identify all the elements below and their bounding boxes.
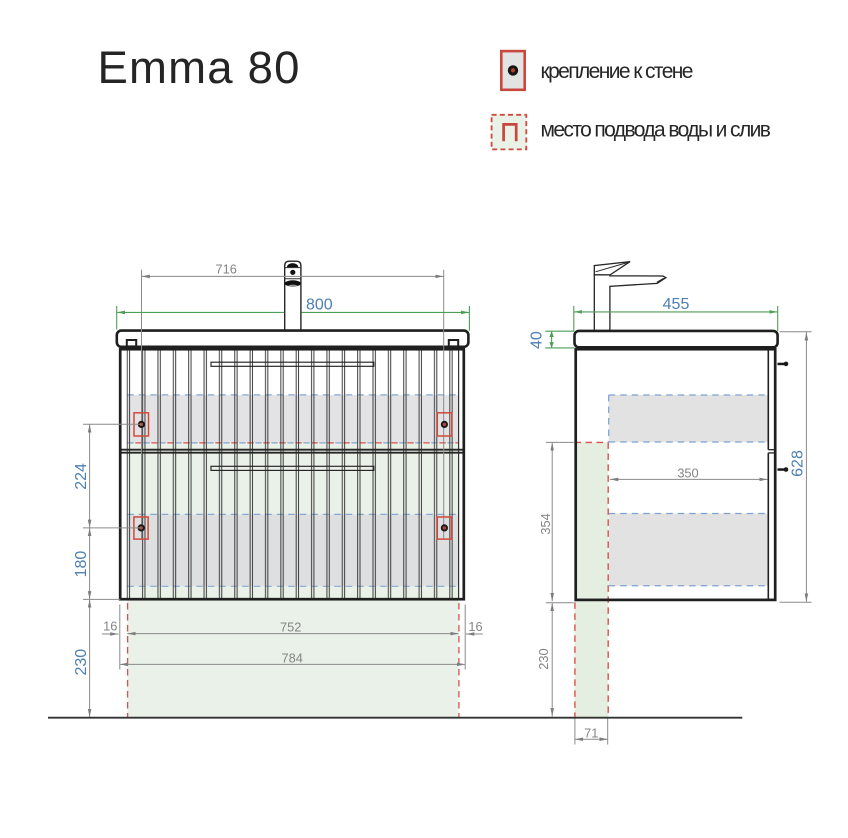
svg-text:место подвода воды и слив: место подвода воды и слив	[541, 118, 771, 141]
svg-text:784: 784	[282, 650, 303, 665]
svg-text:16: 16	[103, 619, 117, 634]
svg-text:224: 224	[73, 463, 90, 490]
svg-text:628: 628	[789, 450, 806, 477]
svg-text:354: 354	[538, 513, 553, 534]
svg-text:71: 71	[584, 725, 598, 740]
svg-text:Emma 80: Emma 80	[98, 42, 301, 93]
svg-text:230: 230	[73, 649, 90, 676]
svg-text:350: 350	[677, 465, 698, 480]
svg-text:752: 752	[280, 619, 301, 634]
svg-text:230: 230	[536, 648, 551, 669]
svg-text:716: 716	[216, 261, 237, 276]
svg-text:крепление к стене: крепление к стене	[541, 60, 693, 83]
svg-text:455: 455	[663, 296, 690, 313]
svg-text:180: 180	[73, 551, 90, 578]
svg-text:16: 16	[468, 619, 482, 634]
svg-text:800: 800	[306, 297, 333, 314]
svg-text:40: 40	[528, 331, 545, 349]
